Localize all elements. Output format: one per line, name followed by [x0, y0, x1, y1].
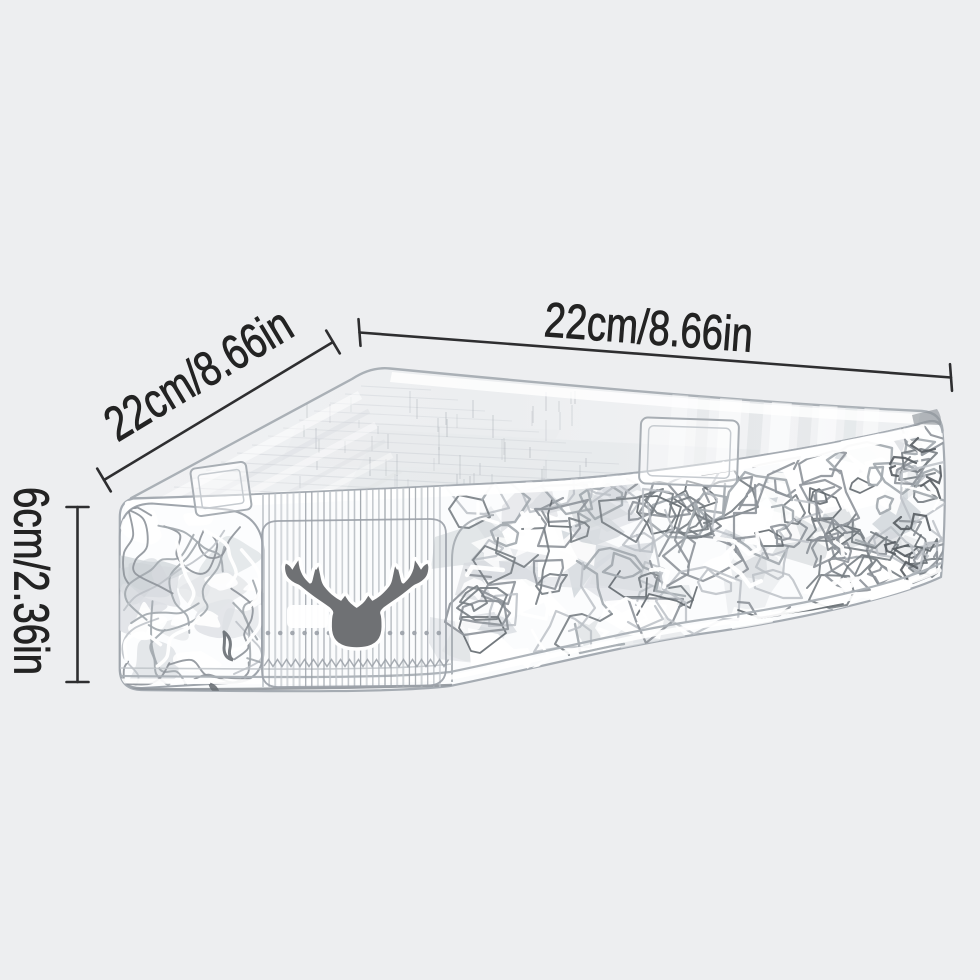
svg-text:6cm/2.36in: 6cm/2.36in	[4, 487, 58, 675]
